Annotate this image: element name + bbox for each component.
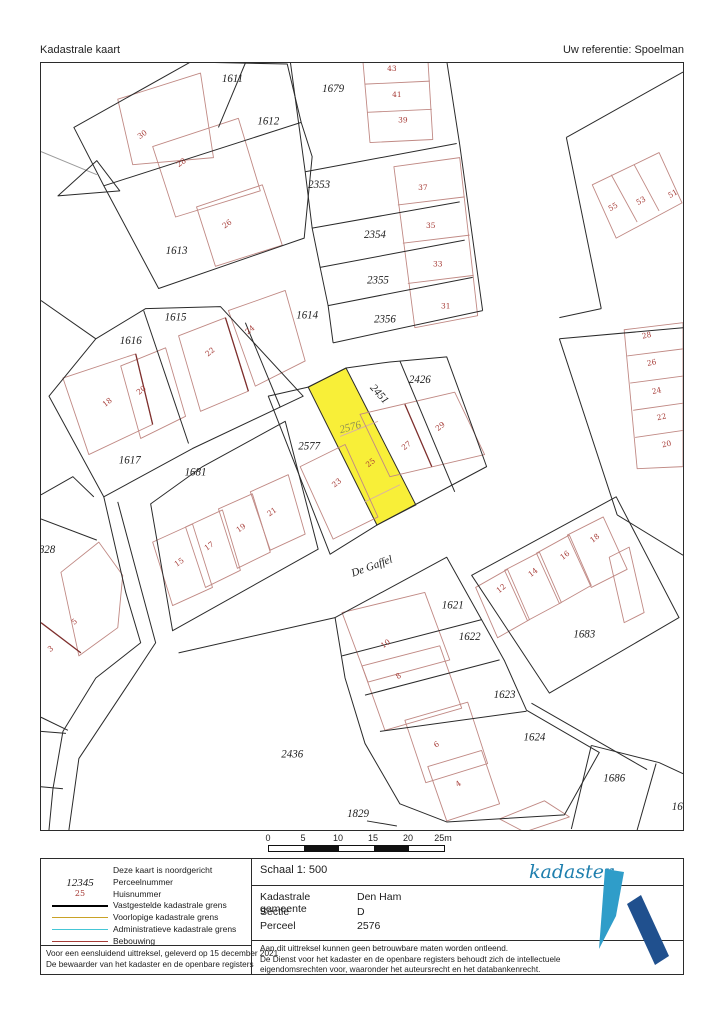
- logo-dark-blade: [627, 895, 669, 965]
- legend-box: Deze kaart is noordgericht12345Perceelnu…: [40, 858, 684, 975]
- house-number: 33: [433, 259, 443, 268]
- legend-item-label: Perceelnummer: [113, 877, 173, 887]
- parcel-boundary: [41, 519, 97, 540]
- parcel-boundary: [566, 72, 683, 137]
- house-number: 28: [175, 156, 188, 169]
- parcel-boundary: [559, 328, 683, 339]
- house-number: 39: [398, 115, 408, 124]
- legend-item-label: Huisnummer: [113, 889, 161, 899]
- info-rows: Kadastrale gemeenteDen HamSectieDPerceel…: [260, 891, 401, 935]
- scale-tick: 10: [333, 833, 343, 843]
- legend-item: Administratieve kadastrale grens: [41, 924, 251, 936]
- house-number: 30: [136, 128, 149, 141]
- disclaimer-line: Voor een eensluidend uittreksel, gelever…: [46, 949, 278, 960]
- street-label: De Gaffel: [349, 553, 394, 579]
- info-row: SectieD: [260, 906, 401, 921]
- parcel-label: 1681: [185, 467, 207, 479]
- house-number: 51: [666, 187, 679, 200]
- parcel-boundary: [571, 745, 591, 829]
- scale-tick: 15: [368, 833, 378, 843]
- page-title: Kadastrale kaart: [40, 44, 120, 56]
- parcel-label: 2577: [298, 440, 320, 452]
- parcel-label: 2355: [367, 274, 389, 286]
- house-number: 20: [661, 439, 672, 450]
- house-number: 43: [387, 64, 397, 73]
- house-number: 29: [434, 420, 447, 433]
- parcel-label: 1623: [494, 689, 516, 701]
- parcel-boundary: [617, 515, 683, 555]
- house-number: 18: [588, 531, 601, 544]
- parcel-boundary: [69, 502, 156, 830]
- parcel-boundary: [179, 618, 336, 653]
- building-outline: [609, 547, 644, 622]
- house-number: 31: [441, 302, 451, 311]
- scale-tick: 20: [403, 833, 413, 843]
- house-number: 18: [101, 396, 114, 409]
- parcel-label: 1614: [296, 310, 318, 322]
- house-number: 35: [426, 221, 436, 230]
- building-outline: [633, 403, 683, 410]
- info-key: Perceel: [260, 920, 357, 935]
- parcel-label: 2436: [281, 748, 303, 760]
- parcel-boundary: [312, 202, 460, 228]
- parcel-label: 828: [41, 544, 56, 556]
- parcel-label: 1613: [166, 245, 188, 257]
- house-number: 24: [243, 323, 256, 336]
- info-row: Perceel2576: [260, 920, 401, 935]
- parcel-label: 2356: [374, 314, 396, 326]
- house-number: 26: [646, 357, 657, 368]
- swatch-line: [52, 941, 108, 942]
- parcel-boundary: [659, 763, 683, 774]
- highlighted-parcel: [308, 368, 416, 525]
- legend-info: Schaal 1: 500 Kadastrale gemeenteDen Ham…: [252, 859, 683, 974]
- building-outline: [365, 81, 430, 84]
- house-number: 37: [418, 183, 428, 192]
- house-number: 26: [221, 217, 234, 230]
- parcel-boundary: [41, 301, 96, 339]
- scale-bar: 0510152025m: [268, 833, 448, 855]
- building-outline: [153, 118, 261, 217]
- kadaster-logo: kadaster: [519, 861, 679, 973]
- parcel-label: 1829: [347, 808, 369, 820]
- info-value: 2576: [357, 920, 380, 935]
- parcel-boundary: [559, 309, 601, 318]
- building-outline: [363, 63, 433, 143]
- parcel-label: 1679: [322, 83, 344, 95]
- info-row: Kadastrale gemeenteDen Ham: [260, 891, 401, 906]
- house-number: 10: [379, 637, 392, 650]
- house-number-sample: 25: [49, 889, 111, 898]
- parcel-label: 1686: [603, 773, 625, 785]
- house-number: 23: [330, 476, 343, 489]
- parcel-boundary: [104, 122, 301, 185]
- info-key: Sectie: [260, 906, 357, 921]
- parcel-boundary: [290, 63, 333, 343]
- legend-disclaimer-right: Aan dit uittreksel kunnen geen betrouwba…: [260, 944, 560, 976]
- legend-item: 25Huisnummer: [41, 889, 251, 901]
- legend-item-label: Vastgestelde kadastrale grens: [113, 900, 227, 910]
- kadaster-logo-mark: [519, 861, 679, 973]
- parcel-label: 2426: [409, 374, 431, 386]
- black-line-swatch: [49, 900, 111, 910]
- info-value: D: [357, 906, 365, 921]
- house-number: 19: [234, 521, 247, 534]
- parcel-boundary: [144, 311, 189, 444]
- building-outline: [61, 542, 123, 656]
- house-number: 4: [454, 778, 463, 788]
- parcel-label: 1617: [119, 455, 141, 467]
- house-number: 21: [265, 505, 278, 518]
- parcel-label: 1624: [524, 731, 546, 743]
- parcel-boundary: [333, 311, 483, 343]
- scale-tick: 25m: [434, 833, 452, 843]
- parcel-label: 1616: [120, 335, 142, 347]
- parcel-label: 1622: [459, 631, 481, 643]
- building-outline: [362, 646, 462, 731]
- building-outline: [630, 376, 683, 383]
- legend-item: Vastgestelde kadastrale grens: [41, 900, 251, 912]
- swatch-line: [52, 905, 108, 907]
- building-outline: [505, 552, 562, 620]
- cyan-line-swatch: [49, 924, 111, 934]
- info-key: Kadastrale gemeente: [260, 891, 357, 906]
- legend-disclaimer-left: Voor een eensluidend uittreksel, gelever…: [46, 949, 278, 970]
- parcel-boundary: [566, 137, 601, 308]
- parcel-boundary: [305, 144, 457, 172]
- scale-segment: [409, 846, 444, 851]
- disclaimer-line: De Dienst voor het kadaster en de openba…: [260, 955, 560, 966]
- building-outline: [403, 235, 470, 243]
- building-outline: [635, 430, 683, 437]
- parcel-boundary: [367, 821, 397, 826]
- parcel-label: 168: [672, 801, 683, 813]
- parcel-boundary: [74, 63, 312, 288]
- yellow-line-swatch: [49, 912, 111, 922]
- disclaimer-line: eigendomsrechten voor, waaronder het aut…: [260, 965, 560, 976]
- swatch-line: [52, 929, 108, 930]
- house-number: 22: [203, 345, 216, 358]
- info-value: Den Ham: [357, 891, 401, 906]
- parcel-label: 1621: [442, 600, 464, 612]
- parcel-label: 2451: [367, 382, 391, 406]
- parcel-boundary: [41, 717, 68, 730]
- building-outline: [611, 175, 637, 222]
- parcel-boundary: [380, 711, 527, 731]
- house-number: 16: [558, 549, 571, 562]
- legend-item-label: Administratieve kadastrale grens: [113, 924, 236, 934]
- building-outline: [118, 73, 214, 165]
- parcel-label: 1612: [257, 115, 279, 127]
- house-number: 53: [635, 194, 648, 207]
- house-number: 41: [392, 90, 402, 99]
- scale-segment: [269, 846, 304, 851]
- swatch-line: [52, 917, 108, 918]
- house-number: 5: [70, 616, 79, 626]
- parcel-boundary: [41, 731, 66, 733]
- house-number: 22: [656, 411, 667, 422]
- house-number: 12: [495, 582, 508, 595]
- disclaimer-line: De bewaarder van het kadaster en de open…: [46, 960, 278, 971]
- parcel-boundary: [559, 339, 617, 515]
- house-number: 14: [526, 566, 539, 579]
- parcel-label: 2353: [308, 179, 330, 191]
- building-party-wall: [405, 404, 432, 466]
- building-outline: [228, 290, 305, 386]
- parcel-number-sample: 12345: [49, 877, 111, 889]
- parcel-boundary: [58, 161, 120, 196]
- house-number: 17: [203, 540, 216, 553]
- legend-item: 12345Perceelnummer: [41, 877, 251, 889]
- scale-tick: 5: [300, 833, 305, 843]
- parcel-boundary: [447, 63, 483, 311]
- scale-tick: 0: [265, 833, 270, 843]
- building-outline: [342, 592, 450, 682]
- scale-segment: [374, 846, 409, 851]
- building-outline: [121, 348, 186, 439]
- house-number: 15: [173, 556, 186, 569]
- cadastral-map: 1611161216131679235323542355235616141615…: [40, 62, 684, 831]
- scale-bar-segments: [268, 845, 445, 852]
- parcel-boundary: [49, 307, 303, 497]
- parcel-label: 1683: [573, 629, 595, 641]
- scale-segment: [304, 846, 339, 851]
- parcel-boundary: [320, 240, 465, 267]
- parcel-boundary: [41, 477, 94, 497]
- legend-divider-left: [41, 945, 251, 946]
- disclaimer-line: Aan dit uittreksel kunnen geen betrouwba…: [260, 944, 560, 955]
- parcel-label: 1611: [222, 73, 243, 85]
- legend-item-label: Deze kaart is noordgericht: [113, 865, 212, 875]
- house-number: 28: [641, 330, 652, 341]
- reference-text: Uw referentie: Spoelman: [563, 44, 684, 56]
- legend-item: Voorlopige kadastrale grens: [41, 912, 251, 924]
- cadastral-map-svg: 1611161216131679235323542355235616141615…: [41, 63, 683, 830]
- parcel-boundary: [637, 764, 656, 830]
- scale-segment: [339, 846, 374, 851]
- parcel-boundary: [591, 745, 659, 762]
- building-outline: [627, 349, 683, 356]
- legend-item-label: Voorlopige kadastrale grens: [113, 912, 218, 922]
- parcel-boundary: [531, 703, 647, 769]
- building-outline: [367, 109, 432, 112]
- house-number: 55: [607, 200, 620, 213]
- house-number: 24: [651, 385, 662, 396]
- building-outline: [179, 318, 249, 412]
- parcel-label: 2354: [364, 229, 386, 241]
- house-number: 27: [400, 439, 413, 452]
- scale-text: Schaal 1: 500: [260, 864, 327, 876]
- house-number: 6: [432, 739, 441, 749]
- parcel-boundary: [49, 497, 141, 830]
- building-outline: [428, 750, 500, 820]
- house-number: 8: [394, 671, 403, 681]
- parcel-boundary: [41, 787, 63, 789]
- logo-light-blade: [599, 869, 624, 949]
- parcel-boundary: [335, 557, 599, 822]
- parcel-label: 1615: [165, 312, 187, 324]
- building-outline: [405, 702, 488, 783]
- house-number: 3: [46, 644, 55, 654]
- legend-item: Deze kaart is noordgericht: [41, 865, 251, 877]
- parcel-boundary: [328, 277, 473, 305]
- building-outline: [398, 197, 465, 205]
- building-outline: [476, 569, 530, 637]
